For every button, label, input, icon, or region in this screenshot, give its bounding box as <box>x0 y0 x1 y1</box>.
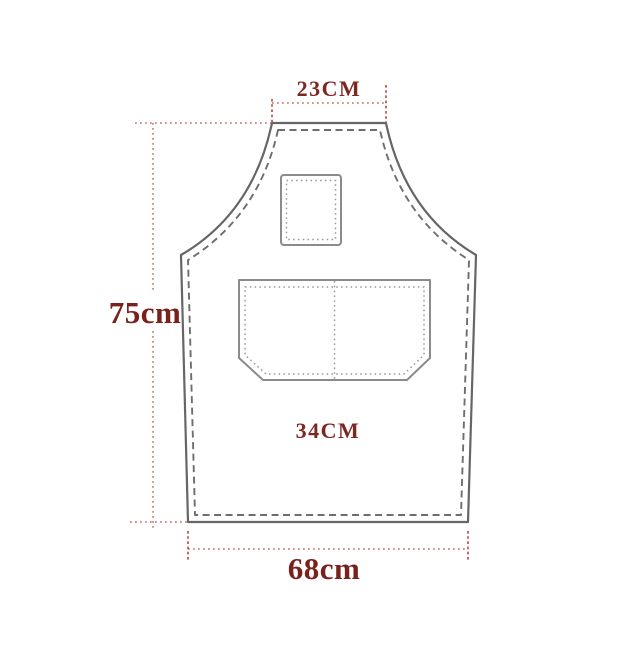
height-label: 75cm <box>109 295 182 330</box>
chest-pocket <box>281 175 341 245</box>
hem-width-label: 68cm <box>288 551 361 586</box>
apron-size-diagram: 23CM 75cm 34CM 68cm <box>0 0 640 657</box>
pocket-width-label: 34CM <box>296 418 361 443</box>
neck-width-label: 23CM <box>297 76 362 101</box>
apron-size-diagram-svg: 23CM 75cm 34CM 68cm <box>0 0 640 657</box>
